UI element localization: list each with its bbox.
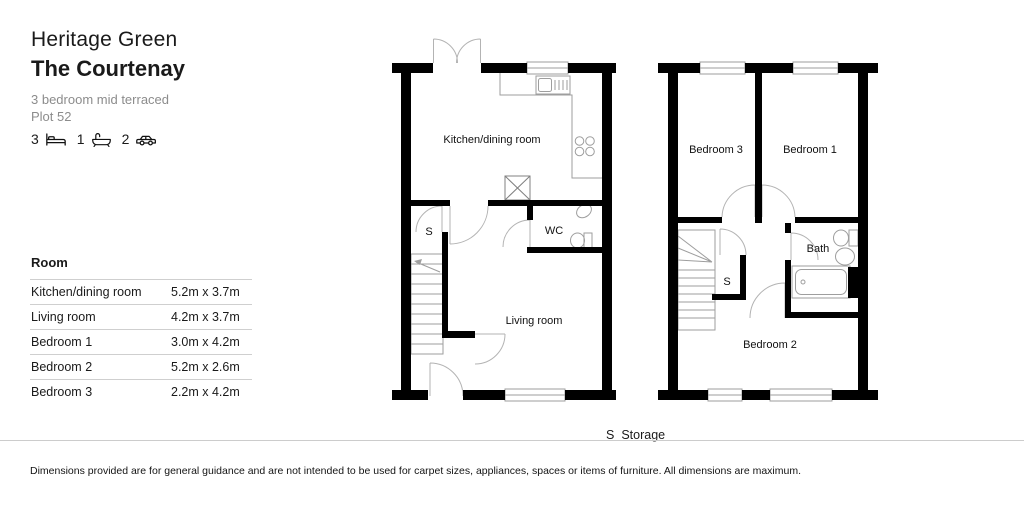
car-icon <box>135 132 158 147</box>
window <box>770 389 832 401</box>
footer-divider <box>0 440 1024 441</box>
bathtub <box>792 266 850 298</box>
storage-label: S <box>425 226 432 238</box>
bed-icon <box>45 131 67 147</box>
room-dimensions: 5.2m x 2.6m <box>171 360 252 374</box>
kitchen-door-arc <box>450 206 488 244</box>
parking-count: 2 <box>122 131 130 147</box>
storage-label: S <box>723 276 730 288</box>
development-name: Heritage Green <box>31 28 177 52</box>
bedroom3-door-arc <box>722 185 755 217</box>
table-row: Bedroom 2 5.2m x 2.6m <box>30 354 252 379</box>
table-row: Living room 4.2m x 3.7m <box>30 304 252 329</box>
room-name: Bedroom 1 <box>30 335 171 349</box>
stat-bathrooms: 1 <box>77 131 112 147</box>
room-dimensions: 3.0m x 4.2m <box>171 335 252 349</box>
living-door-arc <box>475 334 505 364</box>
bath-icon <box>91 131 112 147</box>
kitchen-sink <box>536 76 570 94</box>
table-header-room: Room <box>30 255 252 279</box>
room-name: Bedroom 3 <box>30 385 171 399</box>
appliance-space <box>505 176 530 200</box>
first-floor-labels: Bedroom 3 Bedroom 1 Bath S Bedroom 2 <box>689 144 837 351</box>
window <box>708 389 742 401</box>
ground-floor-doors <box>416 39 530 396</box>
bedroom1-door-arc <box>762 185 795 217</box>
room-name: Living room <box>30 310 171 324</box>
kitchen-label: Kitchen/dining room <box>443 134 540 146</box>
room-dimensions: 2.2m x 4.2m <box>171 385 252 399</box>
front-door-arc <box>430 363 463 396</box>
bath-label: Bath <box>807 243 830 255</box>
ground-floor-fixtures <box>411 73 602 354</box>
room-dimensions-table: Room Kitchen/dining room 5.2m x 3.7m Liv… <box>30 255 252 404</box>
house-name: The Courtenay <box>31 56 185 82</box>
stairs <box>411 254 443 354</box>
bedroom-count: 3 <box>31 131 39 147</box>
wc-door-arc <box>503 220 530 247</box>
storage-door-arc <box>720 229 746 255</box>
window <box>527 62 568 74</box>
living-room-label: Living room <box>506 315 563 327</box>
room-dimensions: 5.2m x 3.7m <box>171 285 252 299</box>
window <box>793 62 838 74</box>
bedroom1-label: Bedroom 1 <box>783 144 837 156</box>
plot-number: Plot 52 <box>31 109 71 124</box>
floorplan-page: Heritage Green The Courtenay 3 bedroom m… <box>0 0 1024 512</box>
ground-floor-plan: Kitchen/dining room S WC Living room <box>388 24 623 414</box>
bedroom2-label: Bedroom 2 <box>743 339 797 351</box>
wc-label: WC <box>545 225 563 237</box>
room-name: Kitchen/dining room <box>30 285 171 299</box>
stairs <box>678 230 715 330</box>
stat-parking: 2 <box>122 131 159 147</box>
washbasin <box>836 248 855 265</box>
stat-bedrooms: 3 <box>31 131 67 147</box>
toilet <box>834 230 859 246</box>
stats-row: 3 1 2 <box>31 131 158 147</box>
bedroom2-door-arc <box>750 283 785 318</box>
room-name: Bedroom 2 <box>30 360 171 374</box>
table-row: Bedroom 1 3.0m x 4.2m <box>30 329 252 354</box>
disclaimer-text: Dimensions provided are for general guid… <box>30 465 801 477</box>
house-description: 3 bedroom mid terraced <box>31 92 169 107</box>
bedroom3-label: Bedroom 3 <box>689 144 743 156</box>
table-row: Kitchen/dining room 5.2m x 3.7m <box>30 279 252 304</box>
first-floor-plan: Bedroom 3 Bedroom 1 Bath S Bedroom 2 <box>652 24 887 414</box>
window <box>700 62 745 74</box>
room-dimensions: 4.2m x 3.7m <box>171 310 252 324</box>
table-row: Bedroom 3 2.2m x 4.2m <box>30 379 252 404</box>
bathroom-count: 1 <box>77 131 85 147</box>
window <box>505 389 565 401</box>
hob <box>575 137 594 156</box>
toilet <box>571 233 593 248</box>
french-door-arc <box>434 39 481 63</box>
